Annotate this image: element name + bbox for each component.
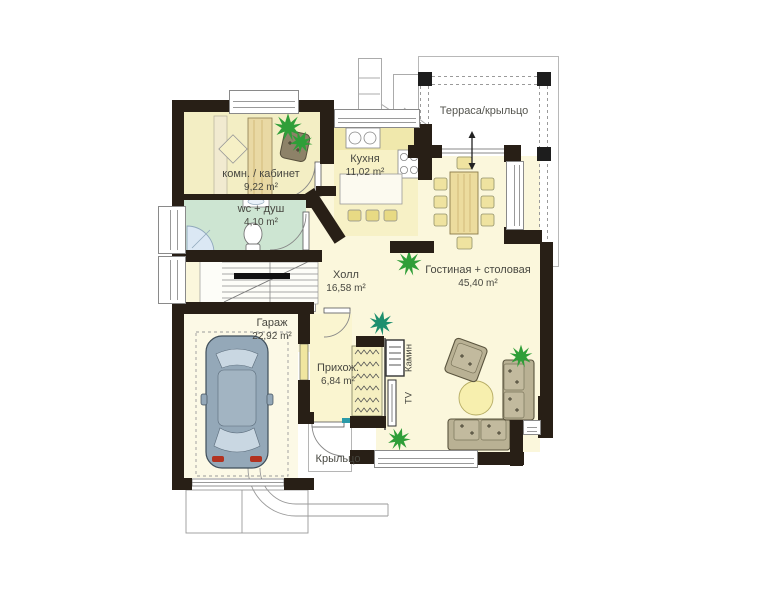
stair-landing-bar [234, 273, 290, 279]
room-label-terrace: Терраса/крыльцо [440, 105, 529, 119]
sofa-right [503, 360, 534, 420]
wall [172, 302, 314, 314]
door-entry-hall [324, 308, 350, 337]
door-garage-leaf [300, 344, 308, 380]
wall [390, 241, 434, 253]
car-roof [218, 370, 256, 426]
garage-door [192, 479, 284, 486]
window [158, 206, 186, 254]
tv-label: TV [404, 392, 415, 404]
window [506, 161, 524, 230]
dining-chair [434, 196, 447, 208]
wall [320, 100, 334, 164]
garage-label-text: Гараж [252, 317, 291, 331]
wall [350, 416, 386, 428]
window [334, 109, 420, 128]
terrace-label-text: Терраса/крыльцо [440, 105, 529, 119]
wc-area-text: 4,10 m² [238, 217, 285, 230]
hall-label-text: Холл [326, 269, 365, 283]
dining-set [434, 157, 494, 249]
room-label-garage: Гараж 22,92 m² [252, 317, 291, 343]
fireplace-label: Камин [404, 344, 415, 372]
kitchen-label-text: Кухня [346, 153, 385, 167]
stool [366, 210, 379, 221]
dining-chair [481, 214, 494, 226]
car-rear-window [216, 349, 258, 368]
terrace-opening [442, 131, 504, 170]
room-label-living: Гостиная + столовая 45,40 m² [425, 264, 530, 290]
hall-area-text: 16,58 m² [326, 283, 365, 296]
room-label-porch: Крыльцо [316, 453, 361, 467]
dining-chair [434, 178, 447, 190]
kitchen-area-text: 11,02 m² [346, 167, 385, 180]
terrace-post [537, 147, 551, 161]
room-label-kitchen: Кухня 11,02 m² [346, 153, 385, 179]
dining-chair [481, 178, 494, 190]
wall [298, 380, 310, 414]
garage-area-text: 22,92 m² [252, 331, 291, 344]
wall [474, 452, 524, 465]
plant-icon [367, 309, 395, 337]
stool [384, 210, 397, 221]
car [201, 336, 273, 468]
plan-drawing [0, 0, 773, 607]
wall [408, 145, 442, 158]
wall [298, 314, 310, 344]
wc-label-text: wc + душ [238, 203, 285, 217]
wall [504, 145, 521, 162]
sofa-bottom [448, 419, 510, 450]
window [229, 90, 299, 114]
wall [172, 250, 322, 262]
car-light-left [212, 456, 224, 462]
dining-chair [481, 196, 494, 208]
dining-chair [434, 214, 447, 226]
living-label-text: Гостиная + столовая [425, 264, 530, 278]
wall [518, 230, 542, 244]
floor-plan: Терраса/крыльцо комн. / кабинет 9,22 m² … [0, 0, 773, 607]
car-mirror-right [267, 394, 273, 405]
window [523, 420, 541, 435]
car-mirror-left [201, 394, 207, 405]
room-label-study: комн. / кабинет 9,22 m² [222, 168, 299, 194]
wall [184, 194, 308, 200]
wall [356, 336, 384, 347]
staircase [200, 256, 318, 304]
plant-icon [385, 425, 413, 453]
stool [348, 210, 361, 221]
room-label-hall: Холл 16,58 m² [326, 269, 365, 295]
window [374, 450, 478, 468]
wall [316, 186, 336, 196]
wall [172, 478, 192, 490]
room-label-wc: wc + душ 4,10 m² [238, 203, 285, 229]
wall [284, 478, 314, 490]
entry-label-text: Прихож. [317, 362, 359, 376]
terrace-post [418, 72, 432, 86]
dining-chair [457, 237, 472, 249]
living-area-text: 45,40 m² [425, 278, 530, 291]
car-light-right [250, 456, 262, 462]
plant-icon [396, 250, 421, 275]
study-label-text: комн. / кабинет [222, 168, 299, 182]
rug [459, 381, 493, 415]
study-area-text: 9,22 m² [222, 182, 299, 195]
study-armchair [279, 130, 310, 163]
room-label-entry: Прихож. 6,84 m² [317, 362, 359, 388]
entry-area-text: 6,84 m² [317, 376, 359, 389]
wall [540, 242, 553, 400]
door-porch [312, 422, 344, 456]
tv [388, 380, 396, 426]
porch-label-text: Крыльцо [316, 453, 361, 467]
terrace-post [537, 72, 551, 86]
window [158, 256, 186, 304]
fireplace [386, 340, 404, 376]
